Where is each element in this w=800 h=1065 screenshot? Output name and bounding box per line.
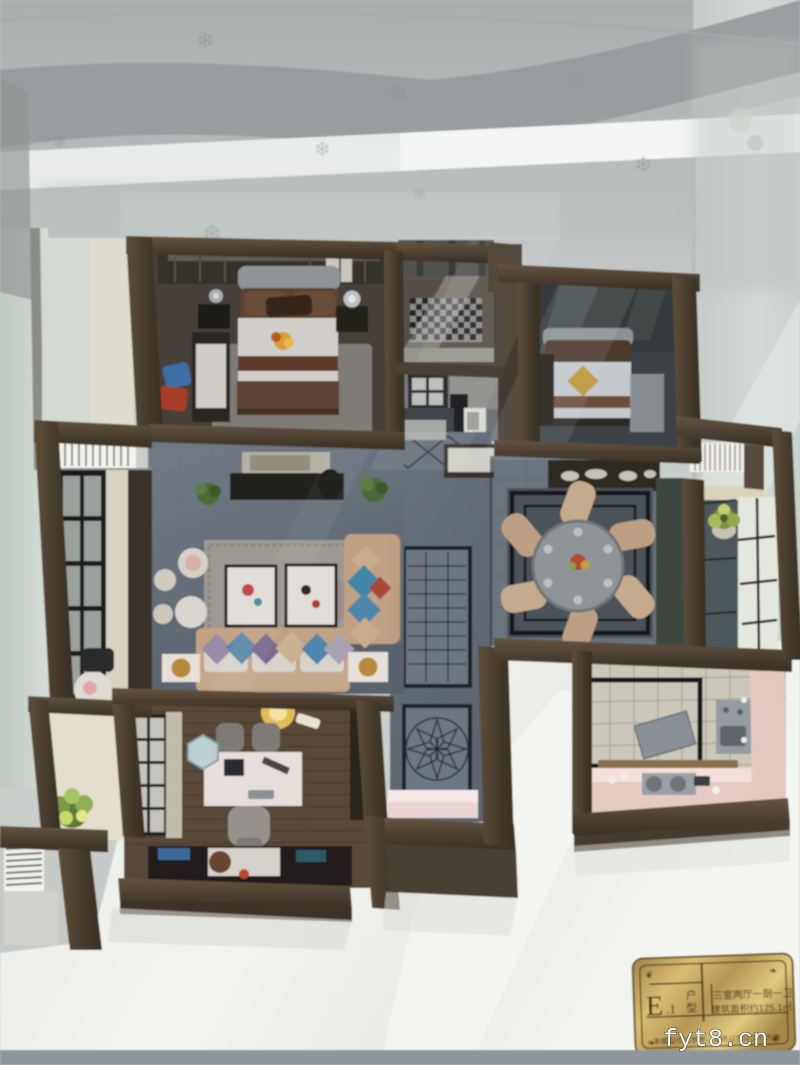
svg-text:❄: ❄	[568, 69, 585, 91]
svg-text:.1: .1	[666, 1001, 676, 1016]
svg-text:❄: ❄	[388, 81, 408, 108]
svg-text:❦: ❦	[645, 970, 654, 981]
svg-text:fyt8.cn: fyt8.cn	[663, 1025, 768, 1054]
svg-text:型: 型	[686, 1001, 697, 1015]
svg-text:❄: ❄	[634, 152, 652, 177]
svg-text:E: E	[646, 991, 664, 1023]
svg-text:❄: ❄	[196, 28, 214, 53]
svg-text:❄: ❄	[314, 139, 331, 161]
svg-text:户: 户	[685, 988, 696, 1002]
svg-text:❄: ❄	[412, 184, 427, 204]
svg-text:❧: ❧	[769, 966, 778, 977]
svg-text:❄: ❄	[52, 132, 67, 152]
